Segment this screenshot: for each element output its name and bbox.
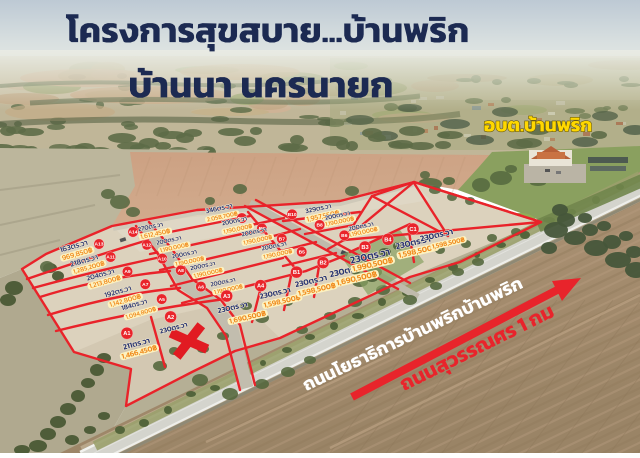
svg-text:A10: A10 [158, 256, 167, 262]
svg-text:A4: A4 [257, 284, 265, 290]
svg-text:A12: A12 [142, 243, 151, 249]
svg-text:A11: A11 [106, 255, 115, 261]
svg-text:A6: A6 [198, 284, 205, 290]
svg-text:B10: B10 [288, 212, 297, 218]
svg-text:B6: B6 [341, 233, 348, 239]
svg-text:A9: A9 [124, 269, 131, 275]
svg-text:A2: A2 [167, 315, 174, 321]
svg-text:C1: C1 [409, 227, 416, 233]
svg-text:A7: A7 [142, 282, 149, 288]
svg-text:B5: B5 [299, 250, 306, 256]
svg-text:A1: A1 [123, 331, 130, 337]
svg-text:B1: B1 [293, 270, 300, 276]
svg-text:A8: A8 [178, 268, 185, 274]
svg-text:B8: B8 [316, 223, 323, 229]
svg-text:B7: B7 [279, 236, 286, 242]
svg-text:B2: B2 [319, 261, 326, 267]
svg-text:A5: A5 [159, 297, 166, 303]
svg-text:A13: A13 [95, 242, 104, 248]
svg-text:B4: B4 [384, 237, 392, 243]
svg-text:A14: A14 [129, 230, 138, 236]
svg-text:A3: A3 [223, 294, 230, 300]
svg-text:B3: B3 [361, 245, 368, 251]
